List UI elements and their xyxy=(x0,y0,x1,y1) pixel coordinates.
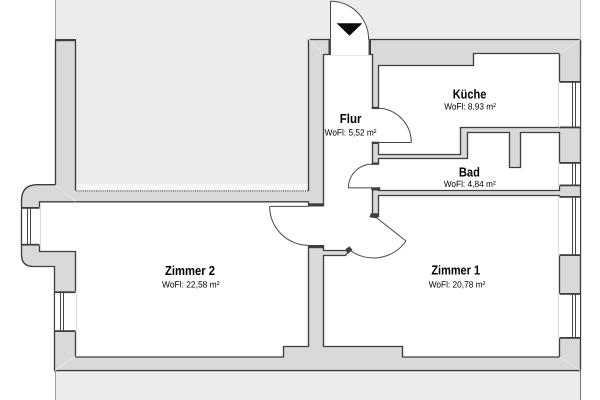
svg-text:Zimmer 1: Zimmer 1 xyxy=(431,263,480,278)
svg-text:WoFl: 22,58 m²: WoFl: 22,58 m² xyxy=(162,280,219,290)
svg-text:Küche: Küche xyxy=(453,86,487,101)
svg-text:WoFl: 4,84 m²: WoFl: 4,84 m² xyxy=(444,179,496,189)
svg-text:Zimmer 2: Zimmer 2 xyxy=(165,263,215,278)
svg-text:Bad: Bad xyxy=(459,164,480,179)
svg-text:WoFl: 8,93 m²: WoFl: 8,93 m² xyxy=(444,102,496,112)
svg-text:WoFl: 5,52 m²: WoFl: 5,52 m² xyxy=(325,128,377,138)
svg-text:Flur: Flur xyxy=(340,111,362,126)
svg-text:WoFl: 20,78 m²: WoFl: 20,78 m² xyxy=(429,280,486,290)
